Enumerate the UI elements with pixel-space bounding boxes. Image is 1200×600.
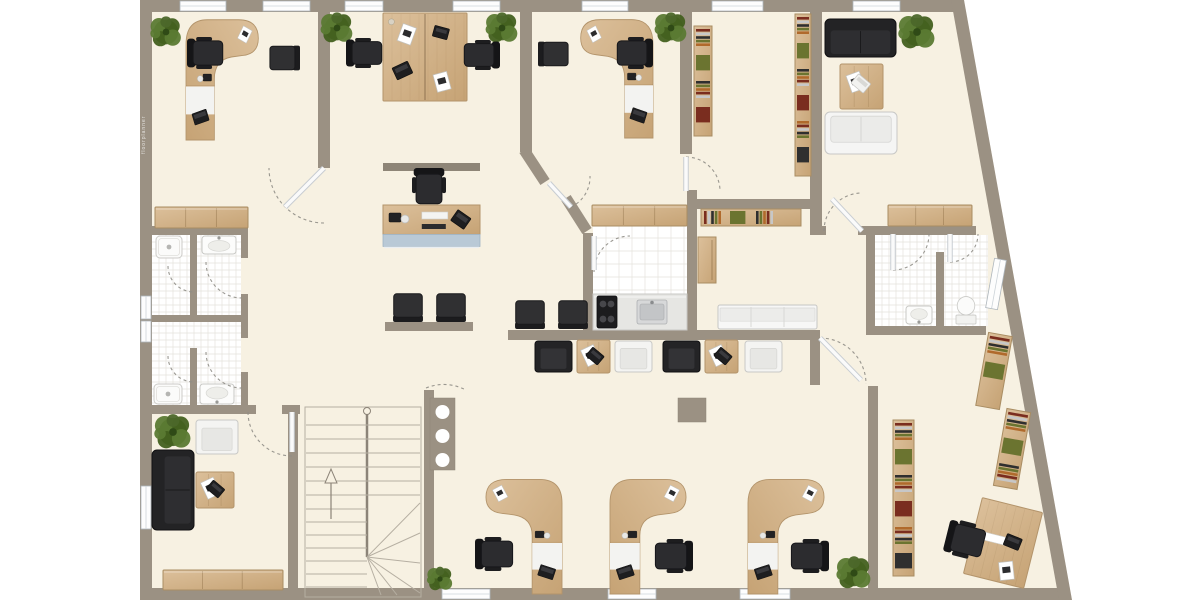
sofa-lounge-dark: [825, 19, 896, 57]
armchair-white-2: [745, 341, 782, 372]
toilet-right: [956, 297, 976, 324]
sofa-waiting-room: [152, 450, 194, 530]
visitor-chair-office-1: [270, 46, 300, 71]
kitchen-stove: [597, 296, 617, 328]
coffee-table-lounge: [840, 64, 883, 109]
sideboard-waiting-room: [163, 570, 283, 590]
armchair-dark-2: [663, 341, 700, 372]
bookshelf-storage-left: [694, 26, 712, 136]
plant-office-3: [655, 12, 687, 42]
waiting-chair-3: [515, 301, 545, 329]
floor-plan-svg: [0, 0, 1200, 600]
decor-panel: [430, 398, 455, 470]
plant-bottom-right: [836, 556, 870, 588]
side-table-1: [577, 340, 610, 373]
sideboard-corridor-left: [155, 207, 248, 228]
chair-reception: [412, 168, 446, 204]
chair-office-1: [187, 37, 223, 69]
sofa-lounge-white: [825, 112, 897, 154]
workstation-chair-3: [791, 539, 829, 573]
plant-waiting-room: [154, 414, 190, 448]
sink-bath-upper: [202, 236, 236, 254]
plant-bottom-center: [427, 567, 452, 591]
shower-bath-lower: [154, 384, 182, 404]
sink-bath-right: [906, 306, 932, 324]
sink-bath-lower: [200, 384, 234, 404]
visitor-chair-office-3: [538, 42, 568, 67]
armchair-waiting-room: [196, 420, 238, 454]
kitchen-tall-cabinet: [698, 237, 716, 283]
workstation-chair-1: [475, 537, 513, 571]
reception-desk: [383, 205, 480, 247]
coffee-table-waiting-room: [196, 472, 234, 508]
bookshelf-storage-right: [795, 14, 811, 176]
plant-open-office-right: [486, 12, 518, 42]
chair-open-office-right: [464, 40, 500, 70]
floor-plan: floorplanner: [0, 0, 1200, 600]
armchair-white-1: [615, 341, 652, 372]
plant-office-1: [150, 16, 181, 46]
workstation-chair-2: [655, 539, 693, 573]
waiting-chair-2: [436, 294, 466, 322]
plant-open-office-left: [321, 12, 353, 42]
watermark-text: floorplanner: [141, 24, 153, 154]
shower-bath-upper: [156, 236, 182, 258]
waiting-chair-4: [558, 301, 588, 329]
armchair-dark-1: [535, 341, 572, 372]
sideboard-lounge: [888, 205, 972, 226]
side-table-2: [705, 340, 738, 373]
bookshelf-corridor-row: [701, 209, 801, 226]
bench-white: [718, 305, 817, 329]
chair-open-office-left: [346, 38, 382, 68]
waiting-chair-1: [393, 294, 423, 322]
chair-office-3: [617, 37, 653, 69]
bookshelf-office-br: [893, 420, 914, 576]
double-desk-open-office: [383, 13, 467, 101]
kitchen-sink: [637, 300, 667, 324]
plant-lounge: [898, 14, 934, 48]
kitchen-upper-cabinets: [592, 205, 687, 226]
